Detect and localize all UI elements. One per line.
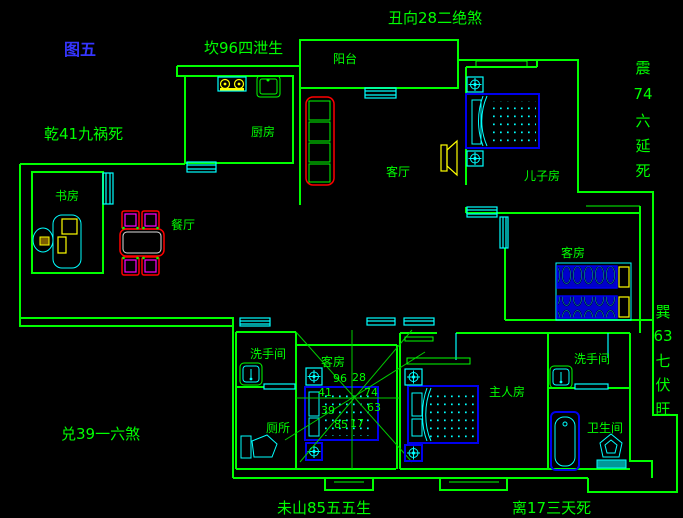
annotation-char: 六 [635, 112, 650, 130]
compass-number: 74 [364, 386, 378, 399]
compass-number: 96 [333, 372, 347, 385]
annotation-char: 延 [635, 137, 650, 155]
room-label-washroom-east: 洗手间 [574, 352, 610, 366]
room-label-study: 书房 [55, 188, 79, 203]
annotation-char: 63 [653, 327, 672, 345]
room-label-guest-center: 客房 [321, 354, 345, 369]
annotation-char: 旺 [655, 400, 670, 418]
compass-number: 28 [352, 371, 366, 384]
compass-number: 85 [334, 418, 348, 431]
compass-number: 63 [367, 401, 381, 414]
annotation-char: 震 [635, 59, 650, 77]
floorplan-canvas: 96 28 41 74 39 63 85 17 [0, 0, 683, 518]
annotation-char: 伏 [655, 376, 670, 394]
annotation-north: 坎96四泄生 [204, 39, 283, 57]
annotation-south: 离17三天死 [512, 499, 591, 517]
annotation-west: 兑39一六煞 [61, 425, 140, 443]
room-label-guest-east: 客房 [561, 245, 585, 260]
compass-number: 39 [321, 404, 335, 417]
annotation-char: 七 [655, 352, 670, 370]
annotation-char: 74 [633, 85, 652, 103]
room-label-bathroom: 卫生间 [587, 421, 623, 435]
figure-label: 图五 [64, 40, 96, 59]
annotation-southeast-vertical: 巽 63 七 伏 旺 [653, 303, 672, 418]
room-label-kitchen: 厨房 [251, 124, 275, 139]
room-label-washroom-center: 洗手间 [250, 347, 286, 361]
annotation-char: 巽 [655, 303, 670, 321]
compass-number: 41 [318, 386, 332, 399]
room-label-balcony: 阳台 [333, 51, 357, 66]
room-label-living: 客厅 [386, 164, 410, 179]
annotation-southwest: 未山85五五生 [277, 499, 371, 517]
annotation-northwest: 乾41九祸死 [44, 125, 123, 143]
compass-number: 17 [350, 417, 364, 430]
room-label-dining: 餐厅 [171, 217, 195, 232]
annotation-northeast: 丑向28二绝煞 [388, 9, 482, 27]
room-label-sons-room: 儿子房 [524, 168, 560, 183]
annotation-char: 死 [635, 162, 650, 180]
room-label-toilet: 厕所 [266, 421, 290, 435]
room-label-master: 主人房 [489, 384, 525, 399]
